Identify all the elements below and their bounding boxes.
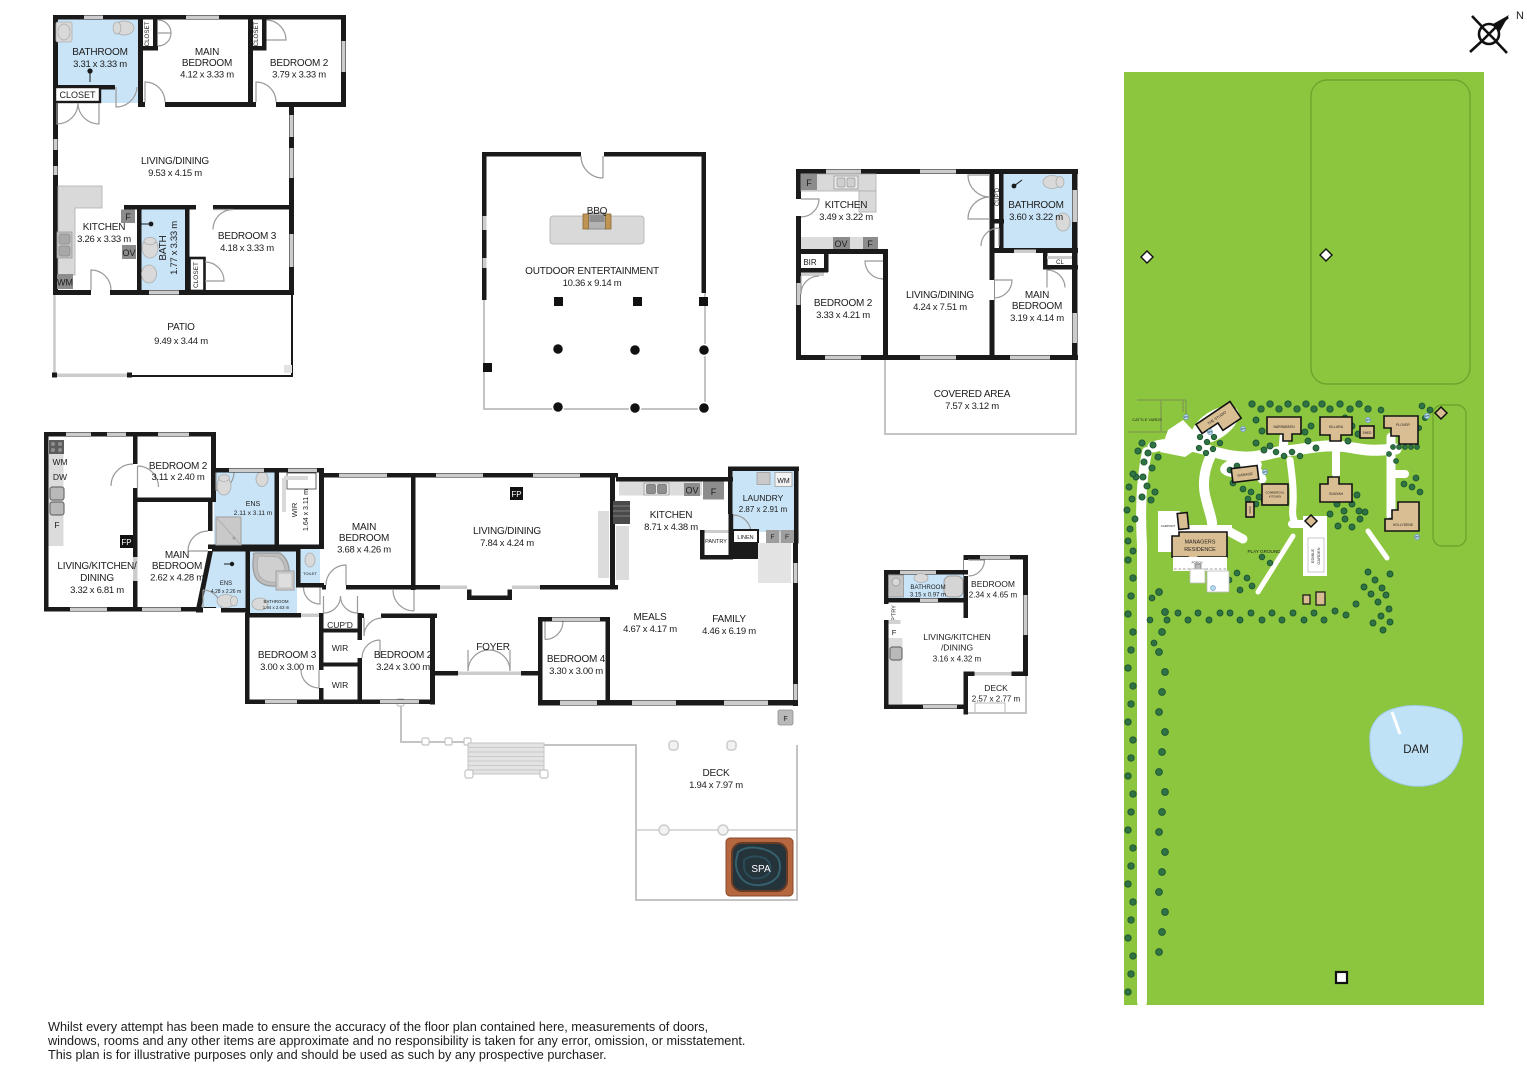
svg-text:LIVING/DINING: LIVING/DINING xyxy=(473,526,541,537)
svg-text:CLOSET: CLOSET xyxy=(253,21,260,46)
svg-text:FAMILY: FAMILY xyxy=(712,614,746,625)
svg-text:3.31 x 3.33 m: 3.31 x 3.33 m xyxy=(73,59,127,70)
svg-text:2.57 x 2.77 m: 2.57 x 2.77 m xyxy=(972,695,1021,704)
svg-text:4.28 x 2.26 m: 4.28 x 2.26 m xyxy=(211,589,241,595)
svg-text:WT: WT xyxy=(1184,415,1188,419)
svg-text:DINING: DINING xyxy=(80,573,114,584)
svg-text:PLAY GROUND: PLAY GROUND xyxy=(1247,549,1281,554)
svg-text:BATHROOM: BATHROOM xyxy=(1008,200,1063,211)
svg-text:4.67 x 4.17 m: 4.67 x 4.17 m xyxy=(623,624,677,635)
svg-text:F: F xyxy=(711,487,717,497)
svg-text:DECK: DECK xyxy=(984,683,1008,693)
svg-text:3.11 x 2.40 m: 3.11 x 2.40 m xyxy=(152,472,205,483)
svg-text:BEDROOM: BEDROOM xyxy=(152,561,202,572)
svg-text:CUP'D: CUP'D xyxy=(327,620,353,630)
svg-text:F: F xyxy=(867,239,873,249)
svg-text:2.87 x 2.91 m: 2.87 x 2.91 m xyxy=(739,505,788,514)
svg-text:F: F xyxy=(771,534,775,541)
svg-text:4.46 x 6.19 m: 4.46 x 6.19 m xyxy=(702,626,756,637)
svg-text:F: F xyxy=(125,212,131,222)
svg-text:2.62 x 4.28 m: 2.62 x 4.28 m xyxy=(150,573,204,584)
svg-text:WM: WM xyxy=(777,478,790,485)
svg-text:KITCHEN: KITCHEN xyxy=(1269,495,1281,499)
svg-text:COVERED AREA: COVERED AREA xyxy=(934,389,1011,400)
svg-text:WIR: WIR xyxy=(332,643,349,653)
svg-text:KITCHEN: KITCHEN xyxy=(825,200,868,211)
svg-text:BATH: BATH xyxy=(158,235,169,260)
svg-text:BEDROOM 3: BEDROOM 3 xyxy=(258,650,317,661)
svg-text:FP: FP xyxy=(121,538,131,547)
svg-text:CATTLE YARDS: CATTLE YARDS xyxy=(1132,417,1162,422)
svg-text:ENS: ENS xyxy=(246,501,261,508)
svg-text:MANAGERS: MANAGERS xyxy=(1185,540,1216,546)
svg-text:3.15 x 0.97 m: 3.15 x 0.97 m xyxy=(910,593,946,599)
svg-text:BIR: BIR xyxy=(803,258,817,267)
svg-text:GUNYAH: GUNYAH xyxy=(1329,492,1344,496)
svg-text:BBQ: BBQ xyxy=(587,206,608,217)
svg-text:9.53 x 4.15 m: 9.53 x 4.15 m xyxy=(148,168,202,179)
svg-text:DW: DW xyxy=(53,472,67,482)
svg-text:7.84 x 4.24 m: 7.84 x 4.24 m xyxy=(480,538,534,549)
svg-text:WT: WT xyxy=(1263,470,1267,474)
svg-text:3.00 x 3.00 m: 3.00 x 3.00 m xyxy=(260,662,314,673)
svg-text:7.57 x 3.12 m: 7.57 x 3.12 m xyxy=(945,401,999,412)
svg-text:BEDROOM 2: BEDROOM 2 xyxy=(814,298,873,309)
svg-text:BEDROOM: BEDROOM xyxy=(971,579,1015,589)
svg-text:BEDROOM: BEDROOM xyxy=(339,533,389,544)
svg-text:CUP'D: CUP'D xyxy=(995,187,1001,206)
svg-text:/DINING: /DINING xyxy=(941,643,973,653)
svg-text:BEDROOM 2: BEDROOM 2 xyxy=(374,650,433,661)
svg-text:3.49 x 3.22 m: 3.49 x 3.22 m xyxy=(819,212,873,223)
svg-text:OV: OV xyxy=(834,239,847,249)
svg-text:WT: WT xyxy=(1425,414,1429,418)
svg-text:FP: FP xyxy=(511,490,521,499)
svg-text:WM: WM xyxy=(52,457,67,467)
svg-text:MEALS: MEALS xyxy=(634,612,667,623)
svg-text:BEDROOM 3: BEDROOM 3 xyxy=(218,231,277,242)
svg-text:CLOSET: CLOSET xyxy=(59,90,96,100)
svg-text:LIVING/DINING: LIVING/DINING xyxy=(141,156,209,167)
svg-text:BEDROOM 4: BEDROOM 4 xyxy=(547,654,606,665)
svg-text:BATHROOM: BATHROOM xyxy=(72,47,127,58)
svg-text:MAIN: MAIN xyxy=(352,522,376,533)
svg-text:WIR: WIR xyxy=(332,680,349,690)
svg-text:WT: WT xyxy=(1415,535,1419,539)
svg-text:WM: WM xyxy=(57,278,73,288)
svg-text:3.60 x 3.22 m: 3.60 x 3.22 m xyxy=(1009,212,1063,223)
svg-text:PANTRY: PANTRY xyxy=(705,539,727,545)
svg-text:GARDEN: GARDEN xyxy=(1316,547,1321,564)
svg-text:4.12 x 3.33 m: 4.12 x 3.33 m xyxy=(180,70,234,81)
svg-text:LIVING/DINING: LIVING/DINING xyxy=(906,290,974,301)
svg-text:OV: OV xyxy=(685,486,698,496)
svg-text:NARRABEEN: NARRABEEN xyxy=(1273,425,1295,429)
svg-text:CL: CL xyxy=(1056,260,1064,266)
svg-text:3.33 x 4.21 m: 3.33 x 4.21 m xyxy=(816,310,870,321)
svg-text:EDIBLE: EDIBLE xyxy=(1310,549,1315,564)
svg-text:LIVING/KITCHEN: LIVING/KITCHEN xyxy=(923,632,991,642)
svg-text:9.49 x 3.44 m: 9.49 x 3.44 m xyxy=(154,336,208,347)
svg-text:LAUNDRY: LAUNDRY xyxy=(743,493,784,503)
svg-text:CARPORT: CARPORT xyxy=(1161,524,1176,528)
svg-text:N: N xyxy=(1516,10,1524,22)
svg-text:3.68 x 4.26 m: 3.68 x 4.26 m xyxy=(337,545,391,556)
svg-text:DAM: DAM xyxy=(1403,744,1429,756)
svg-text:BATHROOM: BATHROOM xyxy=(263,599,288,604)
svg-text:LIVING/KITCHEN/: LIVING/KITCHEN/ xyxy=(57,561,137,572)
svg-text:MAIN: MAIN xyxy=(165,550,189,561)
svg-text:MAIN: MAIN xyxy=(195,47,219,58)
svg-text:TOILET: TOILET xyxy=(303,571,317,576)
svg-text:WT: WT xyxy=(1241,427,1245,431)
svg-text:F: F xyxy=(806,178,812,188)
svg-text:windows, rooms and any other i: windows, rooms and any other items are a… xyxy=(47,1034,745,1048)
svg-text:3.32 x 6.81 m: 3.32 x 6.81 m xyxy=(70,585,124,596)
svg-text:OUTDOOR ENTERTAINMENT: OUTDOOR ENTERTAINMENT xyxy=(525,266,659,277)
svg-text:1.77 x 3.33 m: 1.77 x 3.33 m xyxy=(169,221,180,275)
svg-text:4.18 x 3.33 m: 4.18 x 3.33 m xyxy=(220,243,274,254)
svg-text:CLOSET: CLOSET xyxy=(193,262,200,288)
svg-text:OV: OV xyxy=(122,248,135,258)
svg-text:1.94 x 7.97 m: 1.94 x 7.97 m xyxy=(689,780,743,791)
svg-text:SHED: SHED xyxy=(1363,431,1373,435)
svg-text:WT: WT xyxy=(1208,430,1212,434)
svg-text:BEDROOM 2: BEDROOM 2 xyxy=(149,461,208,472)
svg-text:P'TRY: P'TRY xyxy=(892,605,898,621)
svg-text:3.30 x 3.00 m: 3.30 x 3.00 m xyxy=(549,666,603,677)
svg-text:F: F xyxy=(785,534,789,541)
svg-text:BEDROOM 2: BEDROOM 2 xyxy=(270,58,329,69)
svg-text:KILLARA: KILLARA xyxy=(1329,425,1344,429)
svg-text:SHED: SHED xyxy=(1248,506,1252,513)
svg-text:This plan is for illustrative: This plan is for illustrative purposes o… xyxy=(48,1048,607,1062)
svg-text:RESIDENCE: RESIDENCE xyxy=(1184,547,1216,553)
svg-text:LINEN: LINEN xyxy=(737,535,753,541)
svg-text:10.36 x 9.14 m: 10.36 x 9.14 m xyxy=(563,278,622,289)
svg-text:PLOVER: PLOVER xyxy=(1396,423,1410,427)
svg-text:BATHROOM: BATHROOM xyxy=(910,584,945,591)
svg-text:ENS: ENS xyxy=(220,581,232,587)
svg-text:F: F xyxy=(54,520,59,530)
svg-text:CLOSET: CLOSET xyxy=(144,21,151,46)
svg-text:3.79 x 3.33 m: 3.79 x 3.33 m xyxy=(272,70,326,81)
svg-text:2.11 x 3.11 m: 2.11 x 3.11 m xyxy=(234,510,272,517)
svg-text:8.71 x 4.38 m: 8.71 x 4.38 m xyxy=(644,522,698,533)
svg-text:PATIO: PATIO xyxy=(167,322,195,333)
svg-text:BEDROOM: BEDROOM xyxy=(1012,301,1062,312)
svg-text:3.19 x 4.14 m: 3.19 x 4.14 m xyxy=(1010,313,1064,324)
svg-text:DECK: DECK xyxy=(703,768,731,779)
svg-text:SPA: SPA xyxy=(751,864,771,875)
svg-text:KITCHEN: KITCHEN xyxy=(83,222,126,233)
svg-text:Whilst every attempt has been: Whilst every attempt has been made to en… xyxy=(48,1020,708,1034)
svg-text:WIR: WIR xyxy=(290,502,299,517)
svg-text:1.94 x 2.63 m: 1.94 x 2.63 m xyxy=(263,605,290,610)
svg-text:3.24 x 3.00 m: 3.24 x 3.00 m xyxy=(376,662,430,673)
svg-text:3.26 x 3.33 m: 3.26 x 3.33 m xyxy=(77,234,131,245)
svg-text:WT: WT xyxy=(1366,418,1370,422)
svg-text:1.64 x 3.11 m: 1.64 x 3.11 m xyxy=(303,489,310,531)
svg-text:2.34 x 4.65 m: 2.34 x 4.65 m xyxy=(969,591,1018,600)
svg-text:KITCHEN: KITCHEN xyxy=(650,510,693,521)
svg-text:MAIN: MAIN xyxy=(1025,290,1049,301)
svg-text:3.16 x 4.32 m: 3.16 x 4.32 m xyxy=(933,655,982,664)
svg-text:FOYER: FOYER xyxy=(476,642,509,653)
svg-text:F: F xyxy=(783,716,787,723)
svg-text:F: F xyxy=(892,628,897,637)
svg-text:4.24 x 7.51 m: 4.24 x 7.51 m xyxy=(913,302,967,313)
svg-text:HOLLYDENE: HOLLYDENE xyxy=(1393,523,1414,527)
svg-text:BEDROOM: BEDROOM xyxy=(182,58,232,69)
